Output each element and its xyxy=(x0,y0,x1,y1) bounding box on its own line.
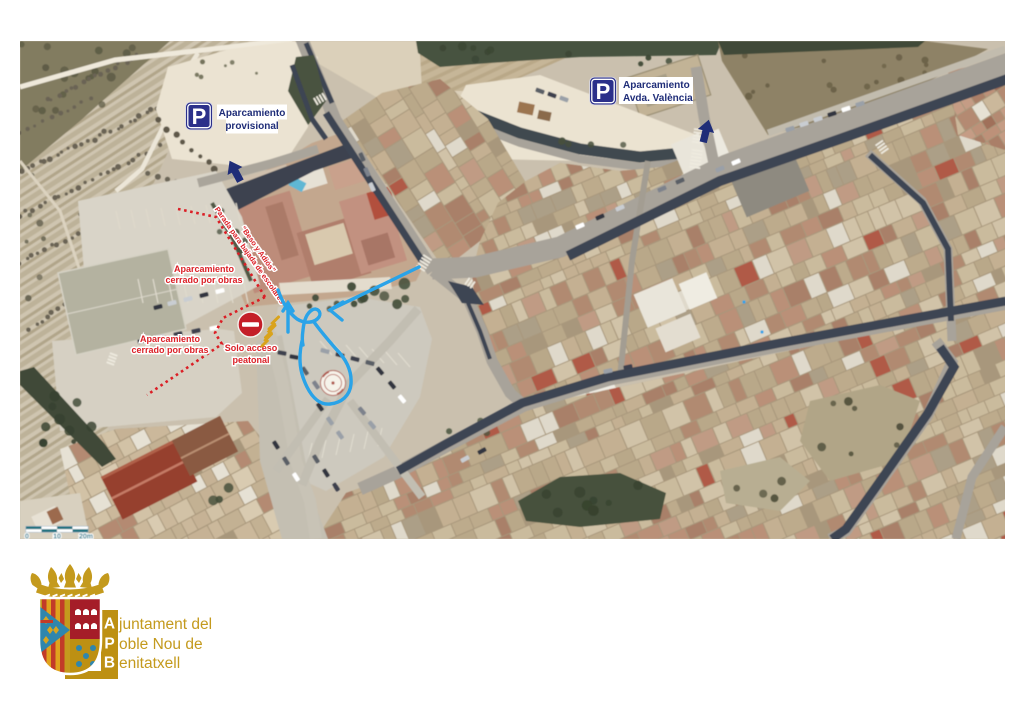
svg-text:A: A xyxy=(104,616,115,633)
svg-text:Aparcamiento: Aparcamiento xyxy=(623,80,690,91)
svg-text:oble Nou de: oble Nou de xyxy=(119,636,203,653)
svg-text:P: P xyxy=(596,79,611,104)
svg-text:cerrado por obras: cerrado por obras xyxy=(131,345,208,355)
svg-text:P: P xyxy=(104,636,114,653)
svg-text:juntament del: juntament del xyxy=(118,616,212,633)
svg-text:P: P xyxy=(192,104,207,129)
svg-text:Aparcamiento: Aparcamiento xyxy=(174,264,235,274)
svg-text:0: 0 xyxy=(25,534,29,540)
svg-text:Avda. València: Avda. València xyxy=(623,93,693,104)
svg-text:peatonal: peatonal xyxy=(232,355,269,365)
svg-text:10: 10 xyxy=(53,534,61,540)
svg-text:Solo acceso: Solo acceso xyxy=(225,343,278,353)
svg-text:Aparcamiento: Aparcamiento xyxy=(219,108,286,119)
svg-text:20m: 20m xyxy=(79,534,93,540)
svg-text:cerrado por obras: cerrado por obras xyxy=(165,275,242,285)
svg-text:provisional: provisional xyxy=(225,121,279,132)
svg-text:B: B xyxy=(104,655,115,672)
svg-text:Aparcamiento: Aparcamiento xyxy=(140,334,201,344)
svg-text:enitatxell: enitatxell xyxy=(119,655,180,672)
